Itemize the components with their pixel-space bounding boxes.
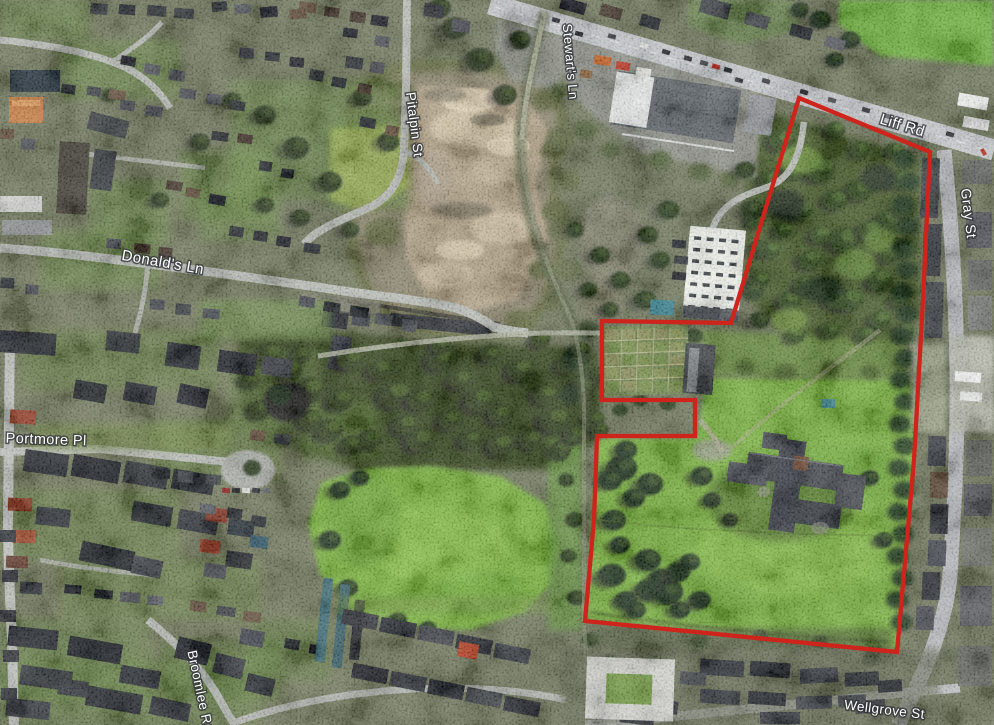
svg-text:Portmore Pl: Portmore Pl [5, 431, 86, 450]
